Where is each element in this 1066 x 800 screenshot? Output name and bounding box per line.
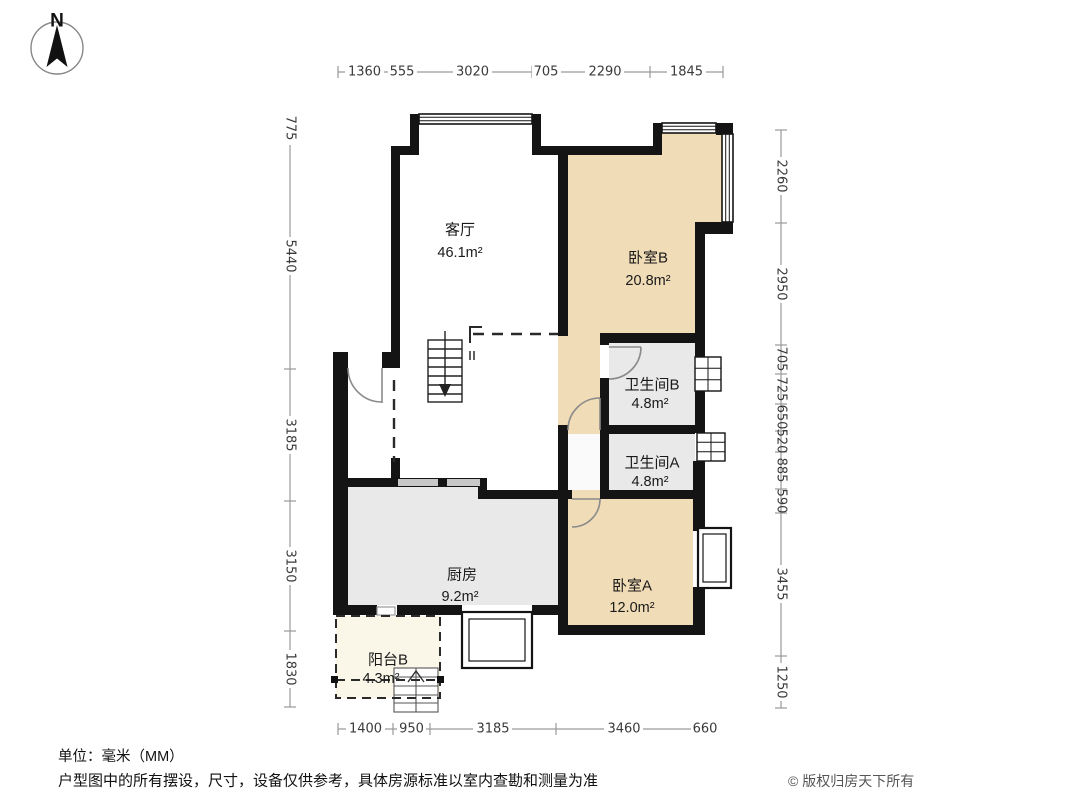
svg-text:卧室A: 卧室A xyxy=(612,578,652,595)
svg-text:阳台B: 阳台B xyxy=(368,652,408,669)
dim-bottom: 1400 950 3185 3460 660 xyxy=(338,721,720,737)
svg-text:520: 520 xyxy=(774,429,789,454)
svg-text:卫生间B: 卫生间B xyxy=(624,377,679,394)
floorplan-page: 客厅 46.1m² 卧室B 20.8m² 卫生间B 4.8m² 卫生间A 4.8… xyxy=(0,0,1066,800)
svg-text:3150: 3150 xyxy=(283,549,298,582)
floor-living xyxy=(348,124,558,490)
window-living-top-icon xyxy=(419,114,532,124)
svg-text:885: 885 xyxy=(774,458,789,483)
svg-text:650: 650 xyxy=(774,405,789,430)
svg-text:3020: 3020 xyxy=(456,65,489,80)
bay-window-bedroom-a-icon xyxy=(698,528,731,588)
window-bedroomb-top-icon xyxy=(662,123,716,133)
svg-text:1360: 1360 xyxy=(348,65,381,80)
svg-text:3455: 3455 xyxy=(774,567,789,600)
window-bedroomb-right-icon xyxy=(722,134,733,222)
svg-text:4.8m²: 4.8m² xyxy=(631,396,668,412)
svg-text:4.3m²: 4.3m² xyxy=(362,671,399,687)
svg-text:555: 555 xyxy=(390,65,415,80)
svg-text:2950: 2950 xyxy=(774,267,789,300)
svg-text:2260: 2260 xyxy=(774,159,789,192)
svg-text:1845: 1845 xyxy=(670,65,703,80)
svg-text:660: 660 xyxy=(693,722,718,737)
floorplan-canvas: 客厅 46.1m² 卧室B 20.8m² 卫生间B 4.8m² 卫生间A 4.8… xyxy=(0,0,1066,800)
svg-text:卧室B: 卧室B xyxy=(628,250,668,267)
floor-kitchen xyxy=(348,487,558,605)
dim-right: 2260 2950 705 725 650 520 885 590 3455 1… xyxy=(773,130,789,708)
window-bath-b-icon xyxy=(695,357,721,391)
svg-text:1400: 1400 xyxy=(349,722,382,737)
svg-text:705: 705 xyxy=(534,65,559,80)
north-label: N xyxy=(50,11,64,32)
svg-text:725: 725 xyxy=(774,377,789,402)
svg-text:12.0m²: 12.0m² xyxy=(609,600,654,616)
svg-text:775: 775 xyxy=(283,116,298,141)
svg-text:3460: 3460 xyxy=(607,722,640,737)
svg-text:客厅: 客厅 xyxy=(445,222,475,239)
north-compass-icon: N xyxy=(31,11,83,75)
svg-text:卫生间A: 卫生间A xyxy=(624,455,679,472)
svg-text:4.8m²: 4.8m² xyxy=(631,474,668,490)
svg-text:9.2m²: 9.2m² xyxy=(441,589,478,605)
staircase-living-icon xyxy=(428,331,462,402)
bay-window-kitchen-icon xyxy=(462,612,532,668)
dim-left: 775 5440 3185 3150 1830 xyxy=(282,111,298,707)
svg-text:1250: 1250 xyxy=(774,665,789,698)
floor-hall xyxy=(568,434,600,490)
svg-text:590: 590 xyxy=(774,489,789,514)
dim-top: 1360 555 3020 705 2290 1845 xyxy=(338,64,723,80)
svg-text:5440: 5440 xyxy=(283,239,298,272)
copyright: © 版权归房天下所有 xyxy=(788,773,914,789)
svg-text:厨房: 厨房 xyxy=(447,567,477,584)
svg-text:3185: 3185 xyxy=(476,722,509,737)
staircase-balcony-icon xyxy=(394,668,438,712)
svg-text:2290: 2290 xyxy=(588,65,621,80)
disclaimer: 户型图中的所有摆设，尺寸，设备仅供参考，具体房源标准以室内查勘和测量为准 xyxy=(58,773,598,790)
svg-text:705: 705 xyxy=(774,347,789,372)
unit-note: 单位：毫米（MM） xyxy=(58,747,184,765)
window-bath-a-icon xyxy=(697,433,725,461)
footer: 单位：毫米（MM） 户型图中的所有摆设，尺寸，设备仅供参考，具体房源标准以室内查… xyxy=(58,747,914,790)
door-balcony-icon xyxy=(377,605,397,615)
svg-text:3185: 3185 xyxy=(283,418,298,451)
svg-text:20.8m²: 20.8m² xyxy=(625,273,670,289)
svg-text:46.1m²: 46.1m² xyxy=(437,245,482,261)
svg-text:950: 950 xyxy=(399,722,424,737)
svg-text:1830: 1830 xyxy=(283,652,298,685)
